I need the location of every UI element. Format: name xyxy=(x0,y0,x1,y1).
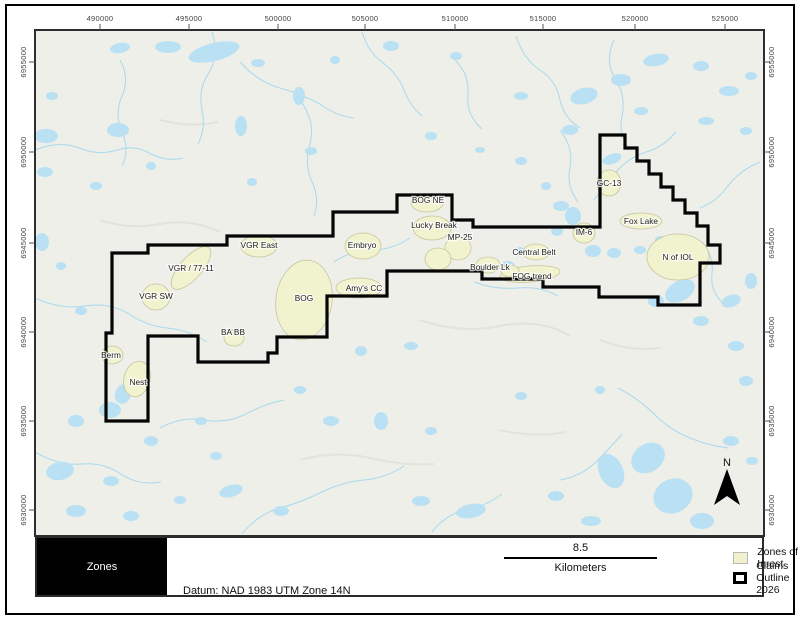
scale-bar-line xyxy=(504,557,657,559)
left-axis-label: 6940000 xyxy=(19,316,28,347)
right-axis-label: 6935000 xyxy=(767,405,776,436)
top-axis-label: 490000 xyxy=(87,14,114,23)
zone-ellipse xyxy=(425,248,451,270)
lake xyxy=(412,496,430,506)
zone-label: Boulder Lk xyxy=(470,262,511,272)
lake xyxy=(68,415,84,427)
lake xyxy=(515,392,527,400)
left-axis-label: 6945000 xyxy=(19,227,28,258)
lake xyxy=(693,61,709,71)
right-axis-label: 6930000 xyxy=(767,494,776,525)
zone-label: Embryo xyxy=(348,240,377,250)
lake xyxy=(107,123,129,137)
lake xyxy=(235,116,247,136)
lake xyxy=(514,92,528,100)
lake xyxy=(330,56,340,64)
lake xyxy=(404,342,418,350)
left-axis-label: 6935000 xyxy=(19,405,28,436)
zone-label: BA BB xyxy=(221,327,245,337)
lake xyxy=(195,417,207,425)
right-axis-label: 6940000 xyxy=(767,316,776,347)
zone-label: FOG trend xyxy=(512,271,552,281)
zone-label: VGR SW xyxy=(139,291,173,301)
lake xyxy=(305,147,317,155)
left-axis-label: 6955000 xyxy=(19,46,28,77)
right-axis-label: 6950000 xyxy=(767,136,776,167)
footer-bar: Zones Datum: NAD 1983 UTM Zone 14N Scale… xyxy=(35,536,764,597)
lake xyxy=(746,457,758,465)
map-figure: VGR / 77-11VGR SWVGR EastBOGBA BBBermNes… xyxy=(0,0,800,619)
lake xyxy=(581,516,601,526)
zone-label: Lucky Break xyxy=(411,220,458,230)
scale-bar: 8.5 Kilometers xyxy=(504,542,657,574)
zone-label: VGR / 77-11 xyxy=(168,263,214,273)
lake xyxy=(553,201,569,211)
zone-label: Central Belt xyxy=(512,247,556,257)
lake xyxy=(607,248,621,258)
zone-label: IM-6 xyxy=(576,227,593,237)
lake xyxy=(475,147,485,153)
lake xyxy=(146,162,156,170)
right-axis-label: 6955000 xyxy=(767,46,776,77)
zone-label: MP-25 xyxy=(448,232,473,242)
right-axis-label: 6945000 xyxy=(767,227,776,258)
zones-title-box: Zones xyxy=(37,538,167,595)
zones-title: Zones xyxy=(87,561,118,573)
zone-label: GC-13 xyxy=(597,178,622,188)
left-axis-label: 6930000 xyxy=(19,494,28,525)
zone-label: Berm xyxy=(101,350,121,360)
lake xyxy=(740,127,752,135)
legend-area: Datum: NAD 1983 UTM Zone 14N Scale 1:158… xyxy=(167,538,762,595)
lake xyxy=(66,505,86,517)
lake xyxy=(634,246,646,254)
lake xyxy=(562,125,578,135)
lake xyxy=(294,386,306,394)
top-axis-label: 505000 xyxy=(352,14,379,23)
lake xyxy=(425,427,437,435)
lake xyxy=(450,52,462,60)
lake xyxy=(293,87,305,105)
lake xyxy=(745,273,757,289)
lake xyxy=(698,117,714,125)
lake xyxy=(374,412,388,430)
datum-text: Datum: NAD 1983 UTM Zone 14N xyxy=(183,584,351,599)
left-axis-label: 6950000 xyxy=(19,136,28,167)
zone-label: Fox Lake xyxy=(624,216,659,226)
lake xyxy=(99,402,121,418)
lake xyxy=(541,182,551,190)
zone-label: BOG NE xyxy=(412,195,445,205)
lake xyxy=(103,476,119,486)
zone-label: Nest xyxy=(129,377,147,387)
top-axis-label: 495000 xyxy=(176,14,203,23)
legend-label: Claims Outline 2026 xyxy=(756,560,799,596)
lake xyxy=(728,341,744,351)
lake xyxy=(46,92,58,100)
zone-label: Amy's CC xyxy=(346,283,383,293)
zone-label: VGR East xyxy=(241,240,279,250)
lake xyxy=(515,157,527,165)
zone-label: BOG xyxy=(295,293,313,303)
lake xyxy=(690,513,714,529)
top-axis-label: 515000 xyxy=(530,14,557,23)
lake xyxy=(565,207,581,225)
lake xyxy=(247,178,257,186)
lake xyxy=(90,182,102,190)
top-axis-label: 510000 xyxy=(442,14,469,23)
scale-bar-value: 8.5 xyxy=(504,542,657,554)
lake xyxy=(251,59,265,67)
lake xyxy=(37,167,53,177)
lake xyxy=(35,233,49,251)
lake xyxy=(745,72,757,80)
lake xyxy=(548,491,564,501)
zone-swatch xyxy=(733,552,748,564)
lake xyxy=(585,245,601,257)
lake xyxy=(595,386,605,394)
top-axis-label: 520000 xyxy=(622,14,649,23)
lake xyxy=(123,511,139,521)
lake xyxy=(425,132,437,140)
scale-bar-unit: Kilometers xyxy=(504,562,657,574)
lake xyxy=(634,107,648,115)
top-axis-label: 525000 xyxy=(712,14,739,23)
legend-items: Zones of InrestClaims Outline 2026 xyxy=(733,548,799,588)
lake xyxy=(723,436,739,446)
lake xyxy=(144,436,158,446)
lake xyxy=(719,86,739,96)
north-arrow-label: N xyxy=(723,457,731,469)
lake xyxy=(323,416,339,426)
zone-label: N of IOL xyxy=(663,252,694,262)
top-axis-label: 500000 xyxy=(265,14,292,23)
lake xyxy=(174,496,186,504)
lake xyxy=(75,307,87,315)
lake xyxy=(383,41,399,51)
lake xyxy=(210,452,222,460)
lake xyxy=(611,74,631,86)
claims-outline-swatch xyxy=(733,572,747,584)
lake xyxy=(273,506,289,516)
lake xyxy=(56,262,66,270)
datum-scale-block: Datum: NAD 1983 UTM Zone 14N Scale 1:158… xyxy=(183,554,351,619)
lake xyxy=(739,376,753,386)
map-page: VGR / 77-11VGR SWVGR EastBOGBA BBBermNes… xyxy=(0,0,800,619)
lake xyxy=(155,41,181,53)
legend-row: Claims Outline 2026 xyxy=(733,568,799,588)
lake xyxy=(34,129,58,143)
lake xyxy=(355,346,367,356)
lake xyxy=(693,316,709,326)
